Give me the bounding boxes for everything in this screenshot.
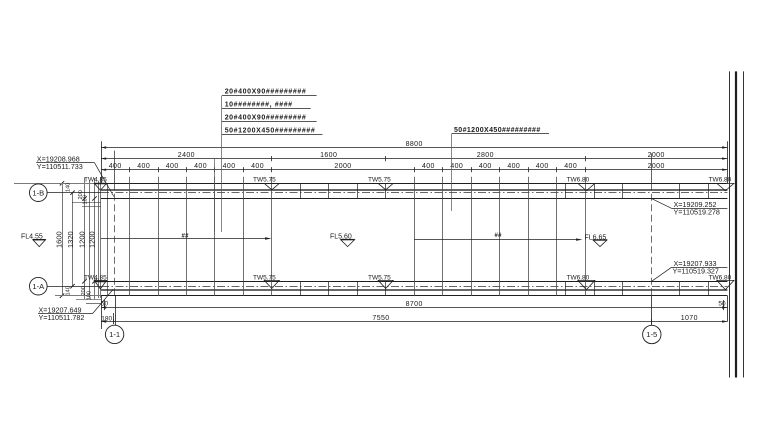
svg-text:7550: 7550: [372, 315, 389, 322]
svg-text:10########, ####: 10########, ####: [225, 102, 293, 109]
svg-text:8700: 8700: [406, 301, 423, 308]
svg-text:1-B: 1-B: [32, 188, 44, 197]
svg-text:8800: 8800: [406, 141, 423, 148]
svg-text:400: 400: [536, 163, 549, 170]
svg-text:2400: 2400: [178, 152, 195, 159]
svg-text:2000: 2000: [334, 163, 351, 170]
svg-text:2800: 2800: [477, 152, 494, 159]
svg-text:1-1: 1-1: [109, 330, 120, 339]
svg-text:400: 400: [251, 163, 264, 170]
svg-text:50: 50: [718, 300, 726, 307]
svg-text:400: 400: [422, 163, 435, 170]
svg-text:20#400X90#########: 20#400X90#########: [225, 89, 307, 96]
svg-text:2000: 2000: [648, 163, 665, 170]
svg-text:400: 400: [194, 163, 207, 170]
svg-text:100: 100: [83, 195, 89, 204]
svg-text:TW6.80: TW6.80: [567, 177, 590, 184]
svg-text:1070: 1070: [681, 315, 698, 322]
svg-text:##: ##: [182, 233, 190, 239]
svg-text:1-5: 1-5: [646, 330, 657, 339]
svg-text:1200: 1200: [78, 231, 87, 248]
svg-text:##: ##: [495, 233, 503, 239]
svg-text:400: 400: [479, 163, 492, 170]
svg-text:TW4.85: TW4.85: [84, 177, 107, 184]
svg-text:1320: 1320: [66, 231, 75, 248]
svg-text:1600: 1600: [320, 152, 337, 159]
svg-text:400: 400: [166, 163, 179, 170]
svg-text:1-A: 1-A: [32, 282, 45, 291]
svg-text:1200: 1200: [88, 231, 97, 248]
svg-text:1600: 1600: [55, 231, 64, 248]
svg-text:Y=110511.782: Y=110511.782: [39, 313, 85, 322]
svg-text:TW6.80: TW6.80: [709, 177, 732, 184]
svg-text:20#400X90#########: 20#400X90#########: [225, 115, 307, 122]
svg-text:400: 400: [564, 163, 577, 170]
svg-text:400: 400: [507, 163, 520, 170]
svg-text:TW5.75: TW5.75: [368, 177, 391, 184]
svg-text:Y=110511.733: Y=110511.733: [37, 162, 83, 171]
svg-text:2000: 2000: [648, 152, 665, 159]
svg-text:400: 400: [223, 163, 236, 170]
svg-text:140: 140: [66, 183, 72, 192]
svg-text:400: 400: [109, 163, 122, 170]
svg-text:180: 180: [101, 316, 112, 323]
svg-text:400: 400: [450, 163, 463, 170]
svg-text:50#1200X450#########: 50#1200X450#########: [454, 127, 541, 134]
svg-text:100: 100: [87, 291, 93, 300]
svg-text:50#1200X450#########: 50#1200X450#########: [225, 128, 316, 135]
svg-text:50: 50: [101, 300, 109, 307]
svg-text:400: 400: [137, 163, 150, 170]
svg-text:140: 140: [66, 286, 72, 295]
svg-text:TW5.75: TW5.75: [253, 177, 276, 184]
